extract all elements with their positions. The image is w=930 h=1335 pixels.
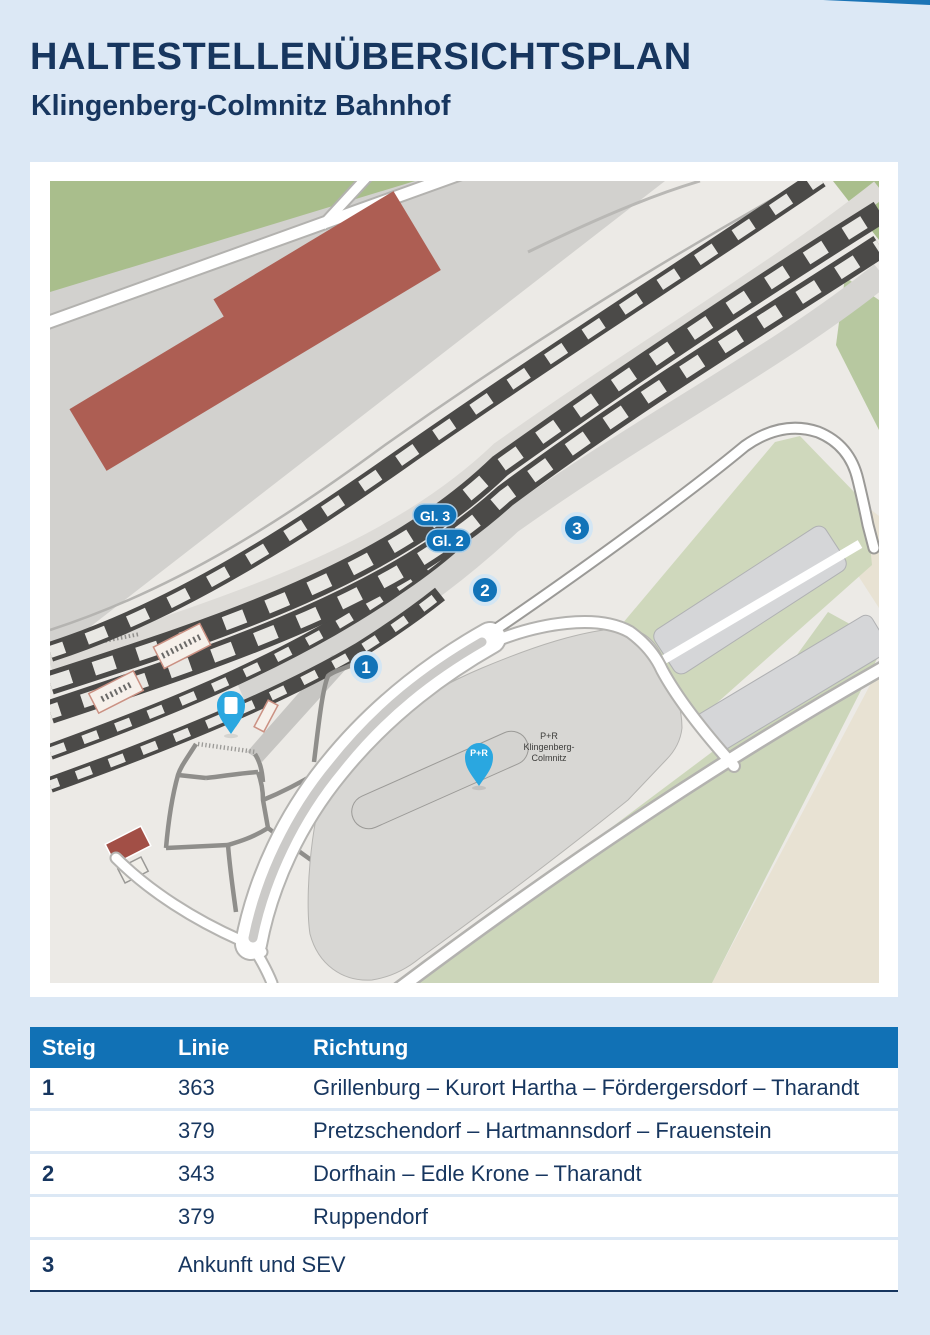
svg-text:2: 2 — [480, 581, 489, 600]
svg-text:3: 3 — [572, 519, 581, 538]
svg-text:P+R: P+R — [540, 731, 558, 741]
svg-text:Colmnitz: Colmnitz — [531, 753, 567, 763]
svg-text:Gl. 2: Gl. 2 — [432, 534, 463, 550]
svg-text:Gl. 3: Gl. 3 — [420, 508, 451, 524]
svg-text:Klingenberg-: Klingenberg- — [523, 742, 574, 752]
svg-text:P+R: P+R — [470, 748, 488, 758]
svg-text:1: 1 — [361, 658, 370, 677]
